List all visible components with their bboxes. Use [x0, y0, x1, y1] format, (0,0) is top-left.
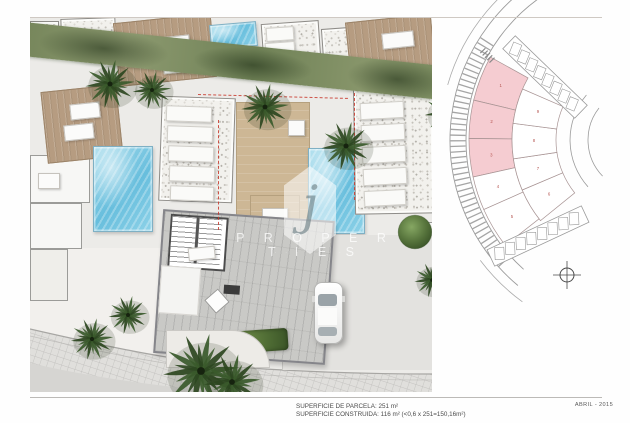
roof-panel	[167, 125, 214, 143]
bottom-rule	[30, 397, 602, 398]
roof-beam	[223, 285, 240, 295]
roof-panel	[363, 167, 408, 186]
pool-left	[93, 146, 153, 232]
superficie-construida-text: SUPERFICIE CONSTRUIDA: 116 m² (<0,6 x 25…	[296, 411, 466, 419]
roof-white-area	[158, 265, 201, 316]
roof-panel	[364, 189, 407, 207]
roof-panel	[168, 145, 215, 163]
neighbor-roof	[30, 249, 68, 301]
top-rule	[30, 17, 602, 18]
car	[314, 282, 343, 344]
roof-panel	[166, 105, 213, 123]
car-roof	[318, 308, 337, 325]
garden-table	[38, 173, 60, 189]
roof-panel	[170, 185, 214, 202]
stairwell	[167, 214, 229, 272]
outer-arc-bottom	[480, 260, 522, 301]
roof-panel	[169, 165, 216, 183]
sun-lounger	[381, 30, 414, 49]
roof-panel	[362, 145, 407, 164]
car-rear-window	[318, 327, 337, 336]
roundabout-arc-inner	[588, 108, 603, 176]
car-mirror	[342, 296, 345, 302]
garden-table	[288, 120, 305, 136]
neighbor-roof	[30, 203, 82, 249]
plan-sheet: j P R O P E R T I E S · · · · · · · · 12…	[0, 0, 630, 423]
superficie-parcela-text: SUPERFICIE DE PARCELA: 251 m²	[296, 403, 466, 411]
car-mirror	[312, 296, 315, 302]
crosshair-mark	[553, 261, 581, 289]
watermark-logo-letter: j	[302, 176, 318, 236]
location-key-plan: 123456789	[435, 20, 630, 290]
plot-boundary-dashed	[354, 93, 355, 200]
footer-areas: SUPERFICIE DE PARCELA: 251 m² SUPERFICIE…	[296, 403, 466, 418]
roof-panel	[361, 123, 406, 142]
sheet-date: ABRIL - 2015	[558, 402, 630, 408]
site-plan-rendering	[30, 18, 432, 392]
sun-lounger	[69, 101, 101, 120]
roof-panel	[360, 101, 405, 120]
sun-lounger	[63, 122, 95, 141]
watermark-subtext: · · · · · · · ·	[255, 250, 375, 255]
plot-boundary-dashed	[218, 120, 219, 230]
car-windshield	[318, 294, 337, 306]
roof-panel	[266, 26, 295, 42]
